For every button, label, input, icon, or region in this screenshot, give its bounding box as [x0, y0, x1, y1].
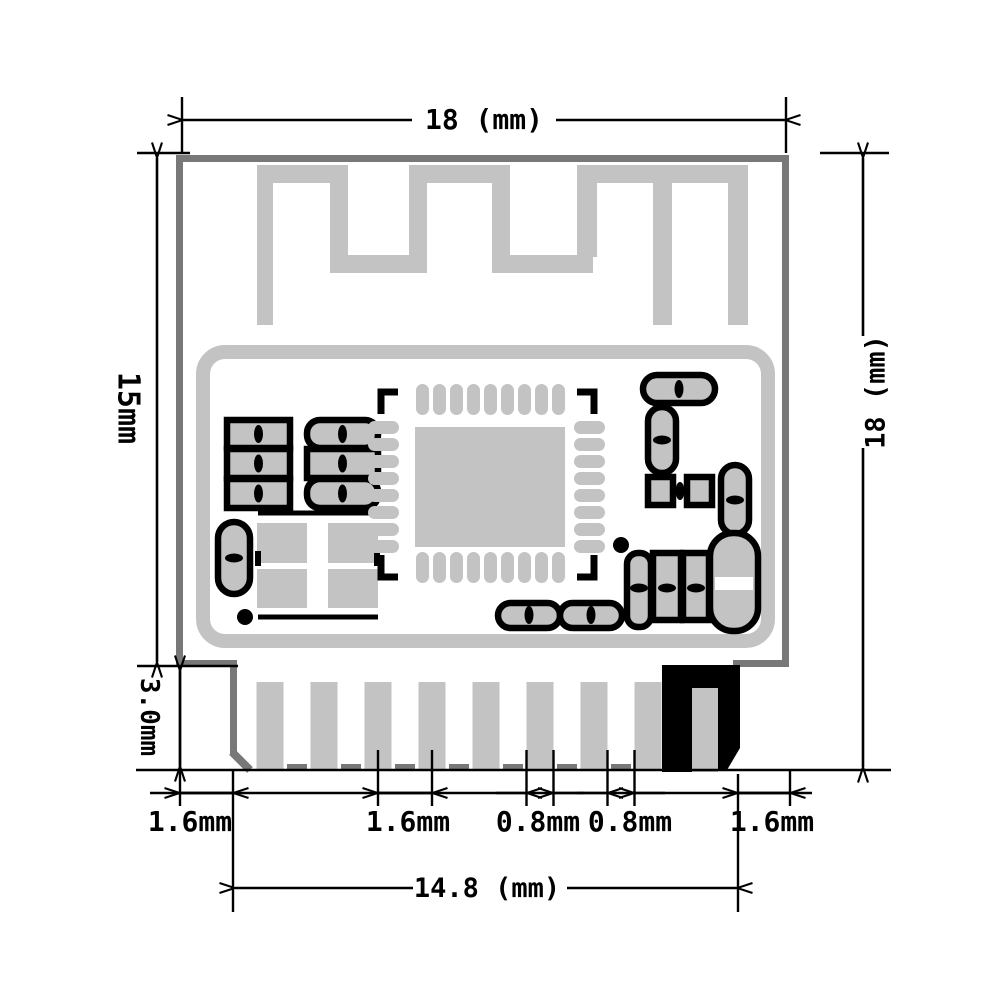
qfn-pad-bottom	[552, 552, 565, 583]
corner-bracket	[381, 555, 398, 577]
bottom-castellated-pins	[257, 682, 662, 770]
board-left-edge	[176, 155, 183, 667]
crystal-pad	[328, 569, 378, 608]
board-bottom-right-step	[733, 660, 789, 667]
dim-label-left-lower: 3.0mm	[134, 678, 164, 756]
qfn-pad-right	[574, 540, 605, 553]
castellated-pin	[257, 682, 284, 770]
qfn-pad-right	[574, 438, 605, 451]
castellated-pin	[473, 682, 500, 770]
dim-left-lower-height: 3.0mm	[134, 671, 180, 766]
castellated-pin	[311, 682, 338, 770]
dim-label-margin-right: 1.6mm	[730, 805, 814, 838]
dim-bottom-width: 14.8 (mm)	[235, 873, 737, 904]
diagram-canvas: GND 18 (mm) 15mm	[0, 0, 1000, 1000]
gnd-pad: GND	[658, 665, 740, 772]
qfn-pad-left	[368, 540, 399, 553]
castellated-pin	[581, 682, 608, 770]
qfn-pad-top	[467, 384, 480, 415]
qfn-pad-bottom	[416, 552, 429, 583]
chip-body	[415, 427, 565, 547]
dim-pin-chain: 1.6mm 1.6mm 0.8mm 0.8mm 1.6mm	[148, 793, 814, 838]
dim-left-height: 15mm	[111, 158, 158, 662]
dim-label-bottom-width: 14.8 (mm)	[414, 873, 560, 904]
dim-label-pin-width: 0.8mm	[496, 805, 580, 838]
corner-bracket	[577, 392, 594, 414]
qfn-pad-left	[368, 489, 399, 502]
resistor-pad	[648, 477, 673, 505]
qfn-pad-right	[574, 455, 605, 468]
pin1-dot	[237, 609, 253, 625]
qfn-pad-top	[433, 384, 446, 415]
qfn-pad-top	[552, 384, 565, 415]
dim-label-right-height: 18 (mm)	[861, 335, 892, 449]
castellated-pin	[527, 682, 554, 770]
qfn-chip-footprint	[368, 384, 629, 583]
dim-label-top-width: 18 (mm)	[425, 103, 543, 136]
castellation-chamfer	[232, 752, 250, 770]
qfn-pad-top	[416, 384, 429, 415]
board-top-edge	[176, 155, 789, 162]
qfn-pad-left	[368, 506, 399, 519]
left-component-bank	[218, 420, 380, 625]
qfn-pad-left	[368, 455, 399, 468]
capacitor-stripe	[715, 577, 753, 590]
qfn-pad-right	[574, 506, 605, 519]
qfn-pad-top	[450, 384, 463, 415]
dim-label-left-height: 15mm	[111, 372, 146, 444]
qfn-pad-top	[518, 384, 531, 415]
antenna-meander-trace	[257, 165, 748, 325]
qfn-pad-left	[368, 523, 399, 536]
qfn-pad-left	[368, 472, 399, 485]
gnd-label: GND	[658, 694, 696, 752]
qfn-pad-right	[574, 421, 605, 434]
crystal-pad	[257, 569, 307, 608]
crystal-pad	[257, 523, 307, 563]
corner-bracket	[577, 555, 594, 577]
pcb-dimension-drawing: GND 18 (mm) 15mm	[0, 0, 1000, 1000]
corner-bracket	[381, 392, 398, 414]
dim-label-pin-gap: 0.8mm	[588, 805, 672, 838]
castellated-pin	[635, 682, 662, 770]
qfn-pad-top	[484, 384, 497, 415]
qfn-pad-left	[368, 438, 399, 451]
qfn-pad-bottom	[484, 552, 497, 583]
qfn-pad-right	[574, 472, 605, 485]
qfn-pad-bottom	[535, 552, 548, 583]
qfn-pad-bottom	[501, 552, 514, 583]
qfn-pad-left	[368, 421, 399, 434]
dim-top-width: 18 (mm)	[183, 103, 785, 136]
board-right-edge	[782, 155, 789, 667]
qfn-pad-bottom	[450, 552, 463, 583]
resistor-pad	[687, 477, 712, 505]
qfn-pad-right	[574, 489, 605, 502]
qfn-pad-right	[574, 523, 605, 536]
qfn-pad-top	[501, 384, 514, 415]
qfn-pad-bottom	[433, 552, 446, 583]
dim-label-pin-pitch: 1.6mm	[366, 805, 450, 838]
dim-label-margin-left: 1.6mm	[148, 805, 232, 838]
dim-right-height: 18 (mm)	[861, 158, 892, 767]
qfn-pad-bottom	[467, 552, 480, 583]
fiducial-dot	[613, 537, 629, 553]
qfn-pad-bottom	[518, 552, 531, 583]
qfn-pad-top	[535, 384, 548, 415]
castellation-left-edge	[230, 660, 237, 755]
